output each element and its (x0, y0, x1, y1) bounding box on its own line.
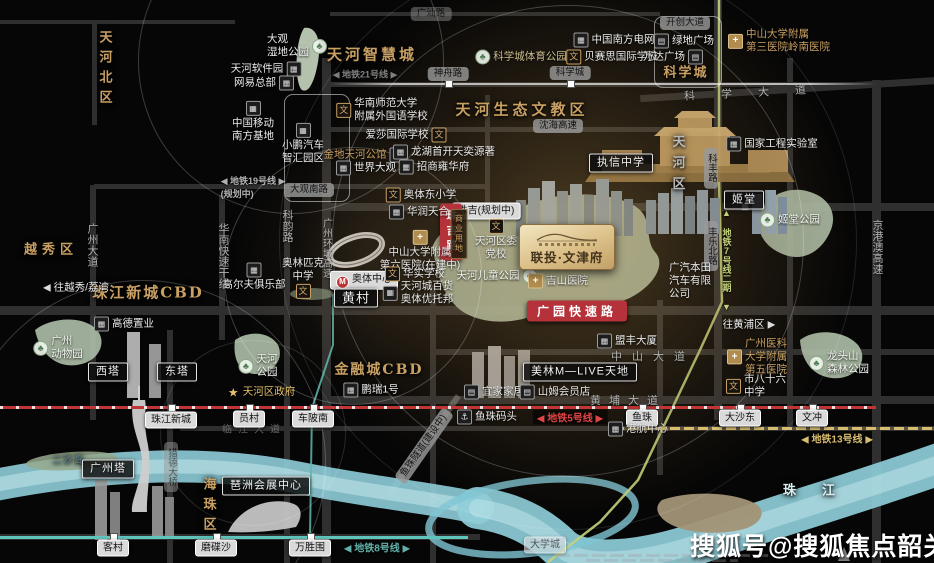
poi-sysu-third-hospital: +中山大学附属第三医院岭南医院 (728, 28, 830, 54)
tianhe-north-district: 天河北区 (95, 30, 114, 110)
landmark-zhixin-middle-school: 执信中学 (589, 154, 653, 173)
golden-campus-illustration (585, 111, 795, 182)
hospital-icon: + (728, 34, 743, 49)
poi-tianhecheng-utopa: ▦天河城百货奥体优托邦 (383, 280, 454, 306)
landmark-canton-tower: 广州塔 (82, 460, 134, 479)
road-pill-kaichuang: 开创大道 (660, 16, 710, 30)
canton-tower-illustration (132, 386, 150, 512)
road-zhuji-road: 珠吉路 (440, 204, 462, 261)
river-island-loop (424, 469, 639, 563)
road-vertical-11 (872, 80, 881, 563)
road-horizontal-3 (330, 127, 718, 132)
park-icon: ♣ (33, 341, 48, 356)
tianhe-eco-culture-zone: 天河生态文教区 (455, 99, 588, 120)
school-icon: 文 (296, 284, 311, 299)
watermark: 搜狐号@搜狐焦点韶关站 (690, 527, 934, 563)
poi-cmsk-yonghuafu: ▦招商雍华府 (399, 160, 470, 175)
pearl-river: 珠江 (783, 480, 861, 499)
park-icon: ♣ (760, 213, 775, 228)
road-vertical-10 (787, 58, 793, 430)
poi-gmu-fifth-hospital: +广州医科大学附属第五医院 (727, 337, 787, 376)
road-horizontal-10 (0, 534, 480, 540)
metro-line8-label: ◀ 地铁8号线 ▶ (344, 540, 411, 555)
poi-daguan-wetland-park: 大观湿地公园♣ (267, 33, 327, 59)
poi-guangzhou-zoo: ♣广州动物园 (33, 335, 83, 361)
poi-yuzhu-wharf: ⚓鱼珠码头 (457, 410, 517, 425)
road-vertical-8 (657, 300, 663, 475)
park-icon: ♣ (809, 356, 824, 371)
haizhu-district: 海珠区 (199, 477, 218, 537)
science-city: 科学城 (663, 62, 708, 81)
building-icon: ▦ (247, 262, 262, 277)
landmark-pazhou-exhibition-center: 琶洲会展中心 (222, 477, 310, 496)
hospital-icon: + (528, 274, 543, 289)
map-canvas: 联投·文津府 搜狐号@搜狐焦点韶关站 天河北区天河智慧城科学城天河生态文教区越秀… (0, 0, 934, 563)
poi-gemdale-tianhe-mansion: 金地天河公馆▦ (324, 148, 405, 163)
school-icon: 文 (386, 188, 401, 203)
poi-mengfeng-tower: ▦盟丰大厦 (597, 334, 657, 349)
station-dot-9 (445, 80, 453, 88)
science-city-block-outline (654, 16, 722, 88)
poi-china-southern-power-grid: ▦中国南方电网 (574, 33, 655, 48)
shop-icon: ▤ (688, 50, 703, 65)
road-vertical-4 (284, 195, 290, 563)
metro-icon: M (336, 275, 349, 288)
road-yuzhu-tunnel-line (387, 394, 461, 496)
property-card: 联投·文津府 (519, 224, 615, 270)
park-icon: ♣ (523, 269, 538, 284)
poi-longfor-tianyi: ▦龙湖首开天奕源著 (393, 145, 495, 160)
ersha-island-shape (25, 449, 118, 473)
cbd-towers-illustration (95, 332, 174, 540)
poi-basis-international-school: 文贝赛思国际学校 (566, 50, 658, 65)
building-icon: ▦ (399, 160, 414, 175)
metro-line5-label: ◀ 地铁5号线 ▶ (533, 410, 608, 425)
anchor-icon: ⚓ (457, 410, 472, 425)
note-to-huangpu: 往黄浦区▶ (723, 318, 776, 331)
road-horizontal-4 (94, 184, 487, 189)
ersha-island: 二沙岛 (52, 453, 85, 466)
school-icon: 文 (385, 267, 400, 282)
station-dot-3 (639, 404, 647, 412)
landmark-meilin-mlive: 美林M—LIVE天地 (523, 363, 637, 382)
shop-icon: ▤ (654, 34, 669, 49)
station-dashadong: 大沙东 (719, 410, 761, 427)
park-icon: ♣ (239, 359, 254, 374)
note-to-yuexiu: ◀往越秀/荔湾 (43, 281, 109, 294)
station-science-city: 科学城 (550, 66, 591, 80)
station-dot-11 (483, 203, 491, 211)
property-caption-marks (539, 243, 595, 246)
road-horizontal-5 (330, 203, 934, 211)
road-horizontal-0 (330, 12, 660, 16)
station-dot-5 (809, 404, 817, 412)
financial-city-cbd: 金融城CBD (334, 359, 423, 379)
property-name: 联投·文津府 (531, 247, 604, 266)
school-icon: 文 (336, 103, 351, 118)
metro-line21-label: ◀ 地铁21号线 ▶ (333, 68, 398, 81)
station-dot-1 (246, 404, 254, 412)
park-icon: ♣ (312, 39, 327, 54)
aoti-stadium-illustration (326, 229, 385, 270)
poi-netease-hq: 网易总部▦ (234, 76, 294, 91)
hospital-icon: + (413, 230, 428, 245)
poi-tianhe-park: ♣天河公园 (239, 353, 278, 379)
poi-gac-honda: 广汽本田汽车有限公司 (669, 261, 711, 300)
station-dot-12 (741, 203, 749, 211)
metro-line7-label: ▲ 地铁7号线二期 ▼ (721, 208, 734, 312)
building-icon: ▦ (597, 334, 612, 349)
road-horizontal-8 (330, 396, 934, 404)
school-icon: 文 (566, 50, 581, 65)
station-shenzhou-road: 神舟路 (428, 67, 469, 81)
station-aoti-center: M奥体中心 (330, 271, 398, 290)
poi-greenland-plaza: ▤绿地广场 (654, 34, 714, 49)
station-daxuecheng: 大学城 (524, 537, 566, 554)
poi-national-engineering-lab: ▦国家工程实验室 (726, 137, 818, 152)
jitang-park-shape (759, 190, 833, 257)
poi-tianhe-party-school: 文天河区委党校 (475, 219, 517, 261)
road-horizontal-6 (0, 306, 934, 315)
school-icon: 文 (489, 219, 504, 234)
poi-tianhe-software-park: 天河软件园▦ (231, 62, 302, 77)
ring-canton-tower (0, 280, 326, 563)
ring-top-left (138, 0, 444, 214)
road-vertical-0 (92, 22, 97, 125)
station-dot-2 (310, 404, 318, 412)
building-icon: ▦ (246, 101, 261, 116)
poi-tianhe-children-park: 天河儿童公园♣ (457, 269, 538, 284)
building-icon: ▦ (393, 145, 408, 160)
road-vertical-1 (90, 185, 96, 420)
station-modiesha: 磨碟沙 (195, 540, 237, 557)
property-logo-art (535, 229, 599, 242)
station-kecun: 客村 (97, 540, 129, 557)
poi-scnu-foreign-language-school: 文华南师范大学附属外国语学校 (336, 97, 428, 123)
poi-science-city-sports-park: ♣科学城体育公园 (475, 50, 567, 65)
label-commercial-land: 商业用地 (451, 209, 468, 259)
building-icon: ▦ (336, 161, 351, 176)
daguan-wetland-shape (297, 28, 320, 91)
station-dot-7 (213, 533, 221, 541)
road-vertical-7 (485, 95, 490, 207)
poi-world-grand-view: ▦世界大观 (336, 161, 396, 176)
station-yuzhu: 鱼珠 (626, 410, 658, 427)
poi-wanda-plaza: 万达广场▤ (643, 50, 703, 65)
building-icon: ▦ (574, 33, 589, 48)
longtoushan-park-shape (800, 332, 862, 378)
road-horizontal-9 (180, 426, 934, 431)
station-dot-6 (110, 533, 118, 541)
poi-huashi-school: 文华实学校 (385, 267, 445, 282)
ring-tianhe-park (160, 340, 346, 526)
poi-gaode-zhiye: ▦高德置业 (94, 317, 154, 332)
school-icon: 文 (726, 379, 741, 394)
road-horizontal-1 (0, 20, 235, 24)
tianhe-district: 天河区 (668, 135, 687, 198)
building-icon: ▦ (94, 317, 109, 332)
park-icon: ♣ (475, 50, 490, 65)
building-icon: ▦ (726, 137, 741, 152)
road-horizontal-7 (430, 349, 934, 355)
road-vertical-2 (167, 330, 173, 563)
station-dot-10 (567, 80, 575, 88)
building-icon: ▦ (286, 62, 301, 77)
landmark-east-tower: 东塔 (157, 363, 197, 382)
poi-xpeng-smart-park: ▦小鹏汽车智汇园区 (282, 123, 324, 165)
tianhe-smart-city: 天河智慧城 (327, 44, 417, 65)
zhujiang-new-town-cbd: 珠江新城CBD (92, 282, 204, 303)
poi-jishan-hospital: +吉山医院 (528, 274, 588, 289)
poi-sysu-sixth-hospital: +中山大学附属第六医院(在建中) (380, 230, 461, 272)
building-icon: ▦ (279, 76, 294, 91)
poi-aoti-east-primary: 文奥体东小学 (386, 188, 457, 203)
building-icon: ▦ (383, 286, 398, 301)
poi-golf-club: ▦高尔夫俱乐部 (223, 262, 286, 291)
metro-line13-label: ◀ 地铁13号线 ▶ (801, 431, 873, 446)
poi-china-mobile-south-base: ▦中国移动南方基地 (232, 101, 274, 143)
building-icon: ▦ (296, 123, 311, 138)
road-vertical-3 (219, 195, 225, 340)
tianhe-park-shape (234, 334, 279, 374)
arrow-left-icon: ◀ (43, 282, 51, 295)
star-icon: ★ (227, 386, 240, 399)
station-wenchong: 文冲 (796, 410, 828, 427)
station-dot-0 (168, 404, 176, 412)
warm-glow (230, 120, 510, 400)
arrow-right-icon: ▶ (768, 319, 776, 332)
station-dot-4 (737, 404, 745, 412)
yuexiu-district: 越秀区 (24, 239, 78, 258)
building-icon: ▦ (390, 148, 405, 163)
station-dot-8 (307, 533, 315, 541)
